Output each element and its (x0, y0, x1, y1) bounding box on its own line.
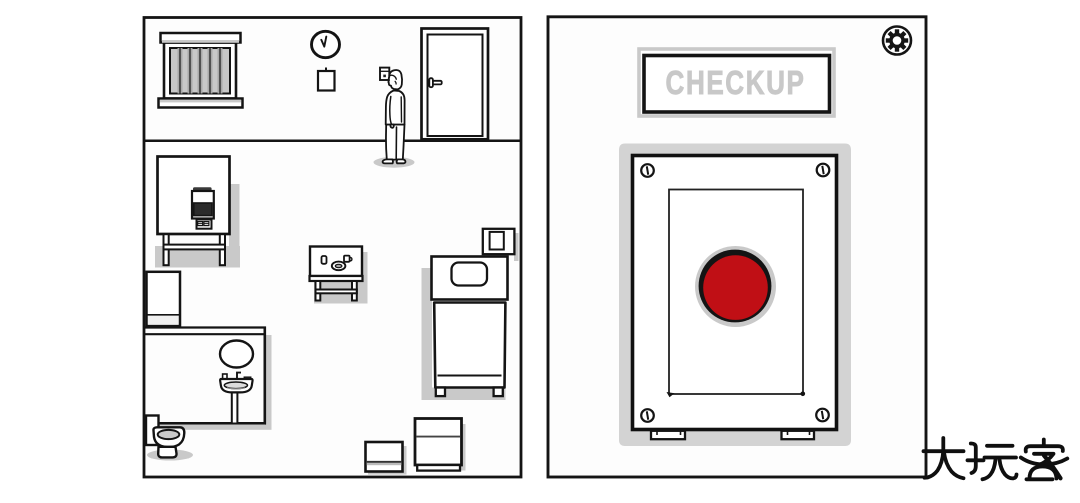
svg-text:CHECKUP: CHECKUP (666, 65, 806, 102)
